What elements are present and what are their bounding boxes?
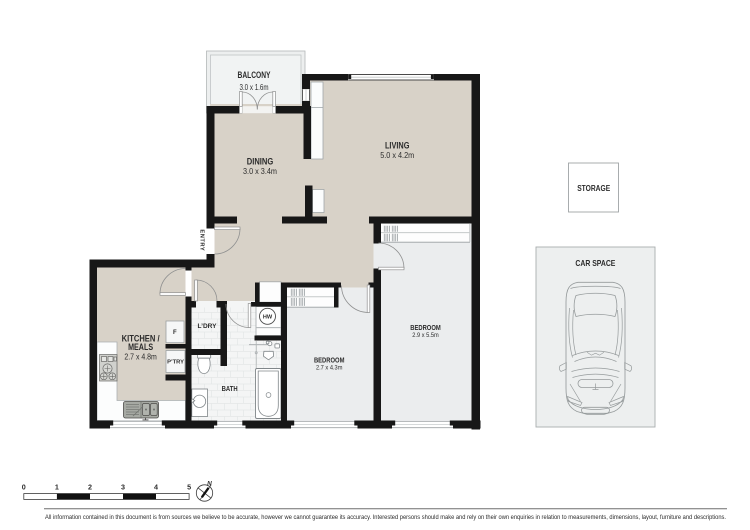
svg-text:3.0 x 3.4m: 3.0 x 3.4m	[243, 166, 277, 176]
svg-text:2: 2	[88, 483, 92, 492]
svg-text:4: 4	[154, 483, 158, 492]
svg-text:3.0 x 1.6m: 3.0 x 1.6m	[240, 82, 269, 92]
svg-text:ENTRY: ENTRY	[198, 229, 204, 251]
svg-text:BEDROOM: BEDROOM	[410, 323, 441, 332]
svg-text:L’DRY: L’DRY	[198, 323, 218, 330]
svg-text:2.7 x 4.3m: 2.7 x 4.3m	[316, 365, 343, 372]
svg-text:CAR SPACE: CAR SPACE	[575, 259, 615, 268]
svg-text:0: 0	[22, 483, 26, 492]
svg-text:2.9 x 5.5m: 2.9 x 5.5m	[412, 332, 439, 339]
svg-text:3: 3	[121, 483, 125, 492]
svg-text:STORAGE: STORAGE	[577, 184, 611, 193]
svg-text:BEDROOM: BEDROOM	[314, 356, 345, 365]
svg-text:F: F	[173, 330, 177, 336]
svg-text:BALCONY: BALCONY	[238, 70, 271, 80]
svg-text:5: 5	[187, 483, 191, 492]
svg-text:N: N	[207, 481, 212, 488]
svg-text:BATH: BATH	[222, 386, 238, 393]
svg-text:2.7 x 4.8m: 2.7 x 4.8m	[124, 351, 157, 361]
svg-text:All information contained in t: All information contained in this docume…	[45, 514, 726, 521]
svg-text:1: 1	[55, 483, 59, 492]
svg-text:HW: HW	[263, 314, 273, 320]
svg-text:P’TRY: P’TRY	[167, 359, 184, 365]
svg-text:5.0 x 4.2m: 5.0 x 4.2m	[380, 150, 414, 160]
svg-text:LIVING: LIVING	[385, 140, 410, 150]
